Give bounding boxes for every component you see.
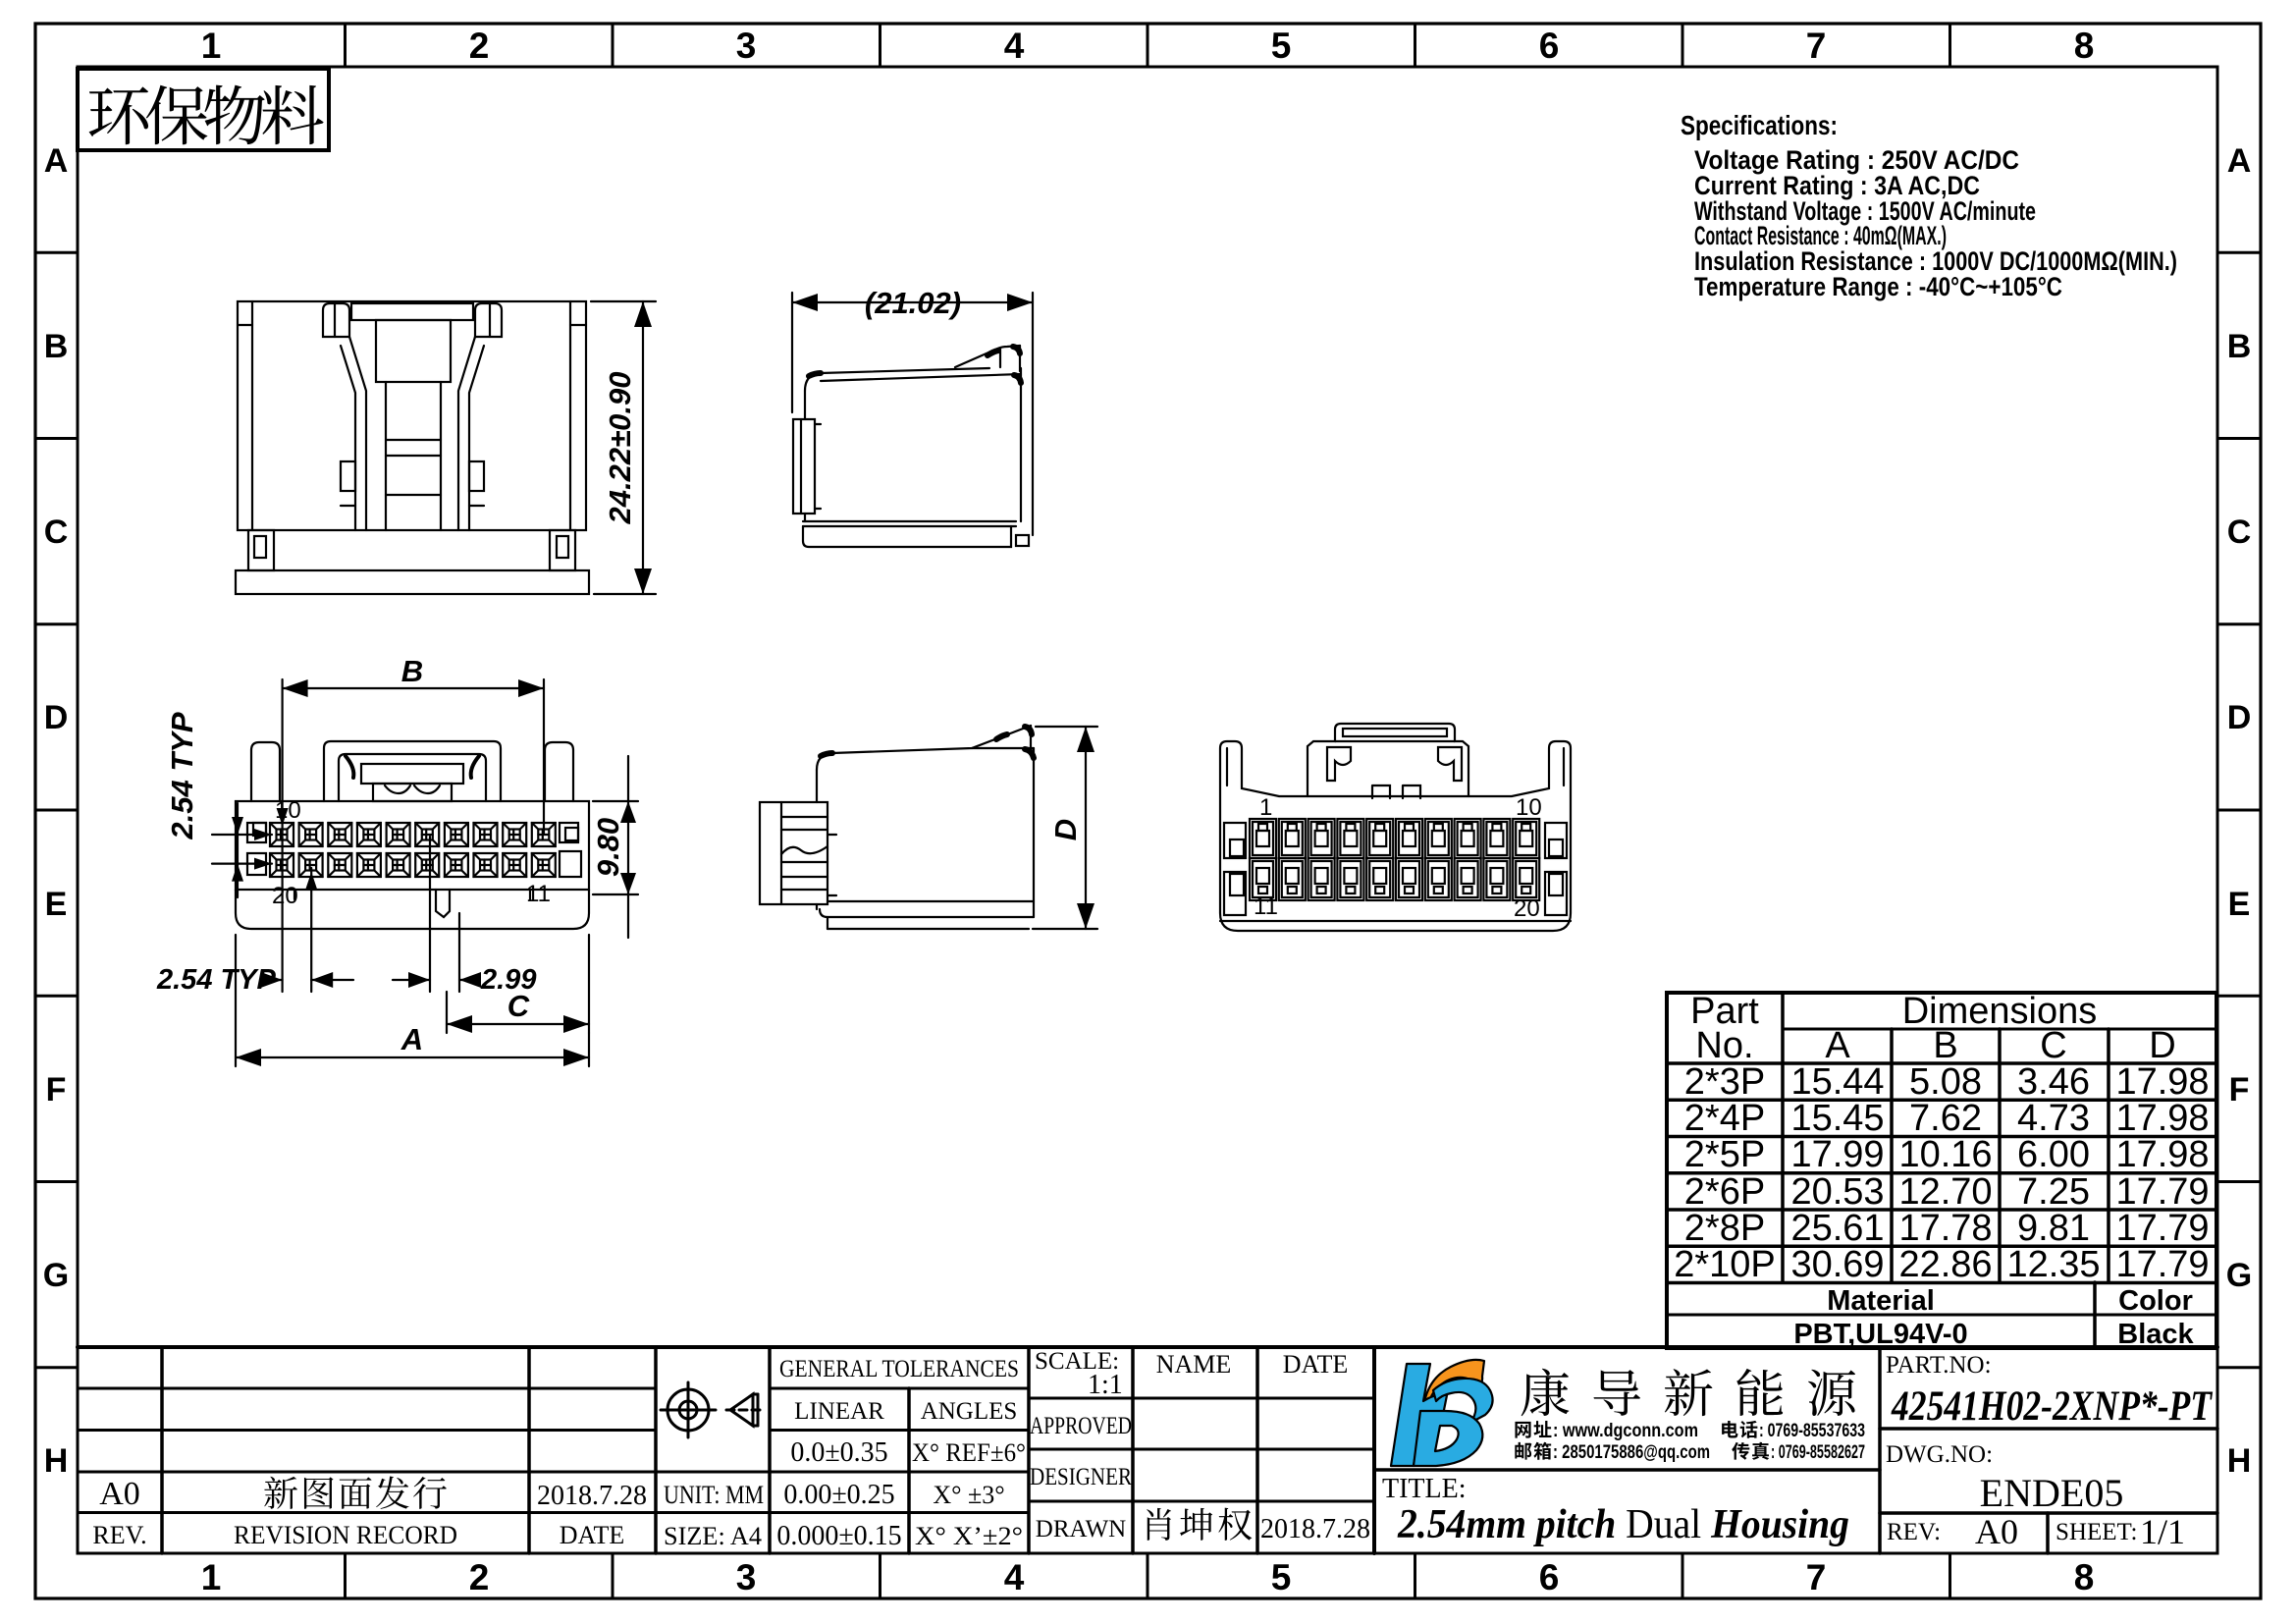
svg-text:20.53: 20.53: [1790, 1171, 1884, 1213]
svg-text:8: 8: [2074, 1557, 2095, 1597]
svg-text:SHEET:: SHEET:: [2056, 1519, 2137, 1545]
svg-text:(21.02): (21.02): [865, 286, 961, 320]
svg-text:2*10P: 2*10P: [1674, 1244, 1776, 1285]
svg-text:15.44: 15.44: [1790, 1061, 1884, 1103]
svg-text:Dimensions: Dimensions: [1902, 991, 2098, 1032]
svg-text:17.98: 17.98: [2115, 1061, 2209, 1103]
svg-text:: 0769-85582627: : 0769-85582627: [1771, 1442, 1865, 1463]
svg-text:8: 8: [2074, 26, 2095, 66]
svg-text:A: A: [1825, 1025, 1850, 1066]
svg-text:11: 11: [1254, 893, 1278, 920]
svg-text:5: 5: [1271, 1557, 1292, 1597]
svg-text:Temperature Range : -40°C~+105: Temperature Range : -40°C~+105°C: [1694, 272, 2062, 301]
svg-text:20: 20: [272, 883, 298, 909]
svg-text:2: 2: [469, 26, 490, 66]
svg-text:12.70: 12.70: [1898, 1171, 1992, 1213]
svg-text:A: A: [44, 142, 69, 180]
svg-text:2*4P: 2*4P: [1684, 1098, 1765, 1139]
svg-text:ANGLES: ANGLES: [921, 1398, 1018, 1425]
svg-text:3: 3: [736, 1557, 757, 1597]
svg-text:24.22±0.90: 24.22±0.90: [603, 372, 637, 525]
svg-text:0.000±0.15: 0.000±0.15: [776, 1521, 901, 1551]
svg-text:15.45: 15.45: [1790, 1098, 1884, 1139]
svg-text:2.54 TYP: 2.54 TYP: [165, 712, 199, 840]
svg-text:GENERAL TOLERANCES: GENERAL TOLERANCES: [779, 1356, 1019, 1382]
svg-text:9.81: 9.81: [2017, 1208, 2090, 1249]
svg-text:2018.7.28: 2018.7.28: [537, 1481, 647, 1511]
svg-text:22.86: 22.86: [1898, 1244, 1992, 1285]
svg-text:17.98: 17.98: [2115, 1098, 2209, 1139]
svg-text:G: G: [2226, 1257, 2252, 1294]
svg-text:X° REF±6°: X° REF±6°: [912, 1438, 1026, 1467]
svg-text:25.61: 25.61: [1790, 1208, 1884, 1249]
svg-text:5: 5: [1271, 26, 1292, 66]
svg-text:D: D: [44, 699, 69, 736]
svg-text:5.08: 5.08: [1909, 1061, 1982, 1103]
svg-text:10.16: 10.16: [1898, 1134, 1992, 1175]
svg-text:42541H02-2XNP*-PT: 42541H02-2XNP*-PT: [1891, 1383, 2213, 1430]
svg-text:: www.dgconn.com: : www.dgconn.com: [1553, 1421, 1698, 1441]
svg-text:LINEAR: LINEAR: [794, 1398, 884, 1425]
svg-text:2018.7.28: 2018.7.28: [1260, 1514, 1370, 1544]
svg-text:Material: Material: [1827, 1285, 1935, 1317]
svg-text:PART.NO:: PART.NO:: [1886, 1352, 1992, 1379]
svg-text:DWG.NO:: DWG.NO:: [1886, 1441, 1993, 1468]
svg-text:7.62: 7.62: [1909, 1098, 1982, 1139]
svg-text:A: A: [400, 1022, 423, 1056]
svg-text:11: 11: [526, 881, 551, 907]
svg-text:B: B: [44, 328, 69, 365]
svg-text:2*6P: 2*6P: [1684, 1171, 1765, 1213]
svg-text:C: C: [2040, 1025, 2066, 1066]
svg-text:E: E: [45, 886, 68, 923]
svg-text:TITLE:: TITLE:: [1382, 1474, 1467, 1504]
svg-text:2: 2: [469, 1557, 490, 1597]
svg-text:E: E: [2228, 886, 2251, 923]
svg-text:C: C: [2227, 514, 2252, 551]
svg-text:17.79: 17.79: [2115, 1208, 2209, 1249]
svg-text:3: 3: [736, 26, 757, 66]
svg-text:NAME: NAME: [1156, 1350, 1232, 1379]
svg-text:APPROVED: APPROVED: [1030, 1413, 1132, 1439]
svg-text:17.98: 17.98: [2115, 1134, 2209, 1175]
svg-text:H: H: [44, 1442, 69, 1480]
svg-text:12.35: 12.35: [2006, 1244, 2100, 1285]
svg-text:DRAWN: DRAWN: [1036, 1516, 1126, 1543]
svg-text:D: D: [2227, 699, 2252, 736]
svg-text:: 0769-85537633: : 0769-85537633: [1759, 1421, 1865, 1441]
svg-text:F: F: [46, 1071, 67, 1109]
svg-text:2.54 TYP: 2.54 TYP: [156, 964, 277, 996]
svg-text:B: B: [401, 654, 423, 688]
svg-text:1/1: 1/1: [2140, 1512, 2185, 1551]
svg-text:4: 4: [1004, 1557, 1025, 1597]
svg-text:17.78: 17.78: [1898, 1208, 1992, 1249]
svg-text:DATE: DATE: [560, 1521, 624, 1549]
svg-text:G: G: [43, 1257, 69, 1294]
svg-text:6.00: 6.00: [2017, 1134, 2090, 1175]
svg-text:17.79: 17.79: [2115, 1171, 2209, 1213]
svg-text:No.: No.: [1695, 1025, 1753, 1066]
svg-text:F: F: [2229, 1071, 2250, 1109]
svg-text:B: B: [1933, 1025, 1957, 1066]
svg-text:Specifications:: Specifications:: [1681, 110, 1838, 140]
svg-text:17.99: 17.99: [1790, 1134, 1884, 1175]
svg-text:Color: Color: [2118, 1285, 2193, 1317]
svg-text:REV:: REV:: [1887, 1519, 1941, 1545]
svg-text:0.0±0.35: 0.0±0.35: [790, 1437, 887, 1468]
svg-text:1: 1: [201, 26, 222, 66]
svg-text:7.25: 7.25: [2017, 1171, 2090, 1213]
svg-text:4: 4: [1004, 26, 1025, 66]
svg-text:6: 6: [1539, 26, 1560, 66]
svg-text:1: 1: [201, 1557, 222, 1597]
svg-text:1: 1: [1259, 794, 1272, 821]
svg-text:6: 6: [1539, 1557, 1560, 1597]
svg-text:C: C: [507, 989, 530, 1023]
svg-text:7: 7: [1806, 1557, 1827, 1597]
svg-text:DATE: DATE: [1283, 1350, 1348, 1379]
svg-text:B: B: [2227, 328, 2252, 365]
svg-text:X° ±3°: X° ±3°: [933, 1481, 1004, 1509]
svg-text:REVISION RECORD: REVISION RECORD: [234, 1521, 457, 1549]
svg-text:C: C: [44, 514, 69, 551]
svg-text:0.00±0.25: 0.00±0.25: [783, 1480, 894, 1510]
svg-text:X° X’±2°: X° X’±2°: [915, 1522, 1023, 1550]
svg-text:10: 10: [1516, 794, 1542, 821]
svg-text:20: 20: [1514, 895, 1540, 922]
svg-text:SIZE: A4: SIZE: A4: [664, 1522, 762, 1550]
svg-text:D: D: [1048, 819, 1083, 840]
svg-text:A0: A0: [1975, 1512, 2018, 1551]
svg-text:17.79: 17.79: [2115, 1244, 2209, 1285]
svg-text:30.69: 30.69: [1790, 1244, 1884, 1285]
svg-text:A0: A0: [99, 1476, 140, 1512]
svg-text:DESIGNER: DESIGNER: [1030, 1464, 1132, 1490]
svg-text:UNIT: MM: UNIT: MM: [664, 1481, 764, 1509]
svg-text:1:1: 1:1: [1088, 1370, 1123, 1400]
svg-text:: 2850175886@qq.com: : 2850175886@qq.com: [1553, 1442, 1710, 1463]
svg-text:9.80: 9.80: [591, 818, 625, 877]
svg-text:A: A: [2227, 142, 2252, 180]
svg-text:3.46: 3.46: [2017, 1061, 2090, 1103]
svg-text:7: 7: [1806, 26, 1827, 66]
svg-text:2*3P: 2*3P: [1684, 1061, 1765, 1103]
svg-text:2*5P: 2*5P: [1684, 1134, 1765, 1175]
svg-text:2.54mm pitch Dual Housing: 2.54mm pitch Dual Housing: [1397, 1502, 1849, 1547]
svg-text:2*8P: 2*8P: [1684, 1208, 1765, 1249]
svg-text:ENDE05: ENDE05: [1980, 1471, 2124, 1515]
svg-text:D: D: [2149, 1025, 2175, 1066]
svg-text:4.73: 4.73: [2017, 1098, 2090, 1139]
svg-text:H: H: [2227, 1442, 2252, 1480]
svg-text:REV.: REV.: [92, 1521, 146, 1549]
